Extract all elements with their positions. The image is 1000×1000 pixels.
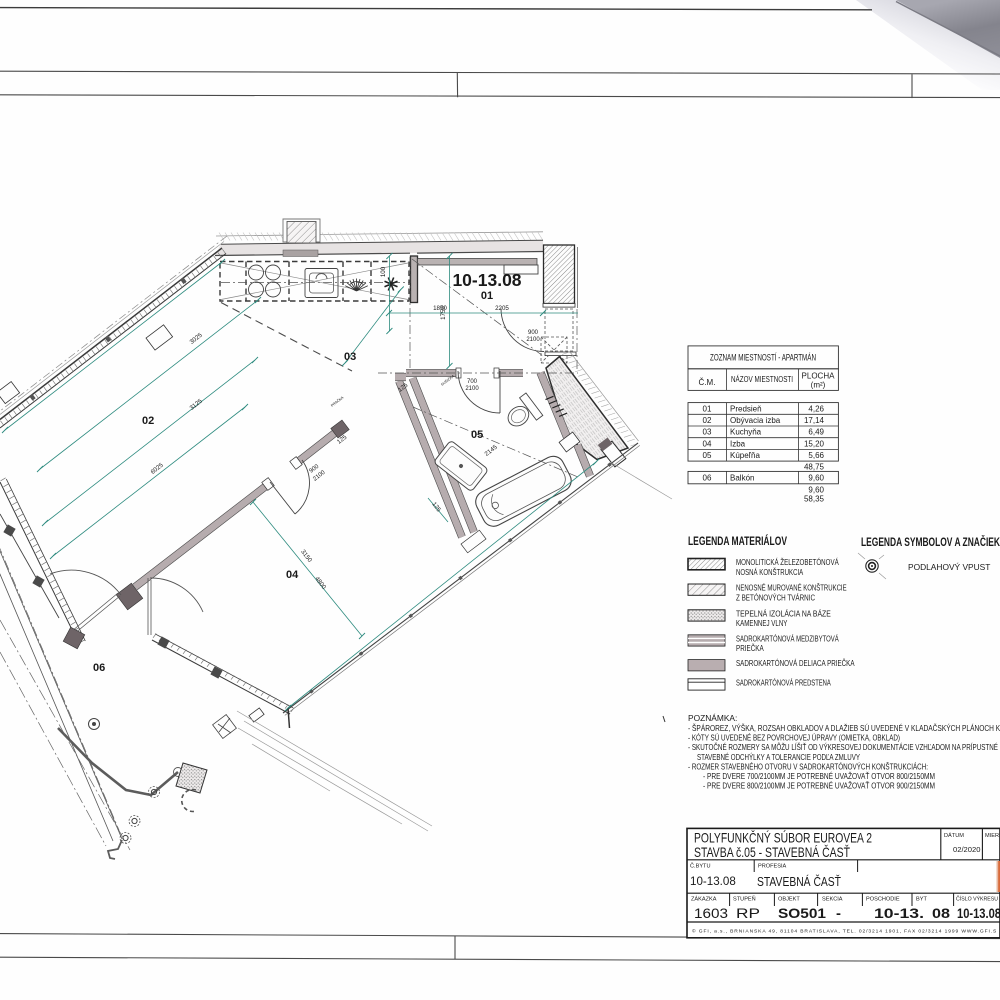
svg-text:5,66: 5,66 (808, 451, 824, 460)
svg-text:2205: 2205 (495, 305, 509, 312)
svg-text:POZNÁMKA:: POZNÁMKA: (688, 713, 737, 723)
svg-text:900: 900 (528, 330, 539, 336)
svg-text:PROFESIA: PROFESIA (758, 864, 787, 870)
svg-text:700: 700 (467, 379, 478, 385)
svg-text:10-13.08: 10-13.08 (452, 270, 521, 290)
svg-text:TEPELNÁ IZOLÁCIA NA BÁZE: TEPELNÁ IZOLÁCIA NA BÁZE (736, 608, 831, 618)
svg-text:9,60: 9,60 (808, 473, 824, 482)
svg-text:ZOZNAM MIESTNOSTÍ - APARTMÁN: ZOZNAM MIESTNOSTÍ - APARTMÁN (710, 353, 816, 363)
svg-text:58,35: 58,35 (804, 495, 825, 504)
svg-text:STAVEBNÉ ODCHÝLKY A TOLERANCIE: STAVEBNÉ ODCHÝLKY A TOLERANCIE PODĽA ZML… (697, 752, 860, 762)
svg-text:PRIEČKA: PRIEČKA (736, 643, 764, 653)
svg-text:NÁZOV MIESTNOSTI: NÁZOV MIESTNOSTI (731, 375, 793, 384)
svg-text:- ROZMER STAVEBNÉHO OTVORU V S: - ROZMER STAVEBNÉHO OTVORU V SADROKARTÓN… (688, 761, 928, 771)
svg-text:(m²): (m²) (811, 381, 826, 390)
svg-text:04: 04 (703, 439, 712, 448)
svg-text:9,60: 9,60 (808, 486, 824, 495)
svg-text:1603: 1603 (694, 906, 728, 921)
svg-text:10-13.08: 10-13.08 (690, 875, 736, 888)
svg-text:© GFI, a.s., BRNIANSKA 49, 811: © GFI, a.s., BRNIANSKA 49, 81104 BRATISL… (692, 928, 997, 935)
svg-text:BYT: BYT (916, 897, 927, 903)
svg-text:17,14: 17,14 (804, 416, 825, 425)
svg-text:Predsieň: Predsieň (730, 404, 762, 413)
svg-text:4,26: 4,26 (808, 404, 824, 413)
svg-text:48,75: 48,75 (804, 462, 825, 471)
svg-text:NOSNÁ KONŠTRUKCIA: NOSNÁ KONŠTRUKCIA (736, 567, 803, 577)
svg-text:06: 06 (93, 662, 105, 674)
svg-text:100: 100 (380, 266, 387, 277)
svg-text:PLOCHA: PLOCHA (802, 371, 836, 380)
svg-text:RP: RP (736, 906, 760, 921)
svg-text:- SKUTOČNÉ ROZMERY SA MÔŽU LÍŠ: - SKUTOČNÉ ROZMERY SA MÔŽU LÍŠIŤ OD VÝKR… (688, 742, 998, 752)
svg-text:SO501: SO501 (778, 906, 827, 921)
svg-text:- KÓTY SÚ UVEDENÉ BEZ POVRCHOV: - KÓTY SÚ UVEDENÉ BEZ POVRCHOVEJ ÚPRAVY … (688, 733, 900, 743)
svg-text:03: 03 (703, 428, 712, 437)
svg-text:05: 05 (471, 429, 483, 441)
svg-text:Balkón: Balkón (730, 473, 754, 482)
svg-text:LEGENDA MATERIÁLOV: LEGENDA MATERIÁLOV (688, 533, 788, 548)
svg-text:2100: 2100 (465, 386, 479, 392)
svg-text:SADROKARTÓNOVÁ PREDSTENA: SADROKARTÓNOVÁ PREDSTENA (736, 677, 831, 687)
svg-text:- PRE DVERE 700/2100MM JE POTR: - PRE DVERE 700/2100MM JE POTREBNÉ UVAŽO… (703, 771, 935, 781)
svg-text:-: - (836, 906, 841, 921)
svg-text:10-13.: 10-13. (874, 906, 924, 921)
svg-text:MIERKA: MIERKA (985, 833, 1000, 839)
svg-text:08: 08 (932, 906, 951, 921)
svg-text:STUPEŇ: STUPEŇ (733, 896, 756, 903)
svg-text:OBJEKT: OBJEKT (778, 897, 800, 903)
svg-text:06: 06 (703, 473, 712, 482)
svg-text:Č.M.: Č.M. (699, 378, 716, 387)
svg-text:6,49: 6,49 (808, 428, 824, 437)
svg-text:Obývacia izba: Obývacia izba (730, 416, 781, 425)
svg-text:NENOSNÉ MUROVANÉ KONŠTRUKCIE: NENOSNÉ MUROVANÉ KONŠTRUKCIE (736, 583, 847, 593)
svg-text:Izba: Izba (730, 439, 746, 448)
svg-text:Č.BYTU: Č.BYTU (690, 863, 711, 870)
svg-text:05: 05 (703, 451, 712, 460)
svg-text:10-13.08: 10-13.08 (957, 906, 1000, 921)
svg-text:POSCHODIE: POSCHODIE (866, 897, 900, 903)
svg-text:MONOLITICKÁ ŽELEZOBETÓNOVÁ: MONOLITICKÁ ŽELEZOBETÓNOVÁ (736, 557, 839, 567)
svg-text:DÁTUM: DÁTUM (944, 832, 964, 839)
svg-text:01: 01 (481, 290, 493, 302)
svg-text:SADROKARTÓNOVÁ MEDZIBYTOVÁ: SADROKARTÓNOVÁ MEDZIBYTOVÁ (736, 633, 839, 643)
svg-text:02/2020: 02/2020 (953, 845, 980, 854)
svg-text:PODLAHOVÝ VPUST: PODLAHOVÝ VPUST (908, 562, 990, 572)
svg-text:- ŠPÁROREZ, VÝŠKA, ROZSAH OBKL: - ŠPÁROREZ, VÝŠKA, ROZSAH OBKLADOV A DLA… (688, 723, 1000, 733)
svg-text:01: 01 (703, 404, 712, 413)
svg-text:KAMENNEJ VLNY: KAMENNEJ VLNY (736, 618, 788, 628)
svg-text:04: 04 (286, 569, 299, 581)
svg-text:SEKCIA: SEKCIA (822, 897, 843, 903)
svg-text:LEGENDA SYMBOLOV A ZNAČIEK: LEGENDA SYMBOLOV A ZNAČIEK (861, 534, 1000, 549)
svg-text:STAVEBNÁ ČASŤ: STAVEBNÁ ČASŤ (757, 874, 841, 889)
svg-text:1850: 1850 (433, 305, 447, 312)
svg-text:Kuchyňa: Kuchyňa (730, 428, 762, 437)
svg-text:03: 03 (344, 351, 356, 363)
svg-text:Z BETÓNOVÝCH TVÁRNIC: Z BETÓNOVÝCH TVÁRNIC (736, 592, 815, 602)
svg-text:2100: 2100 (526, 337, 540, 343)
svg-text:SADROKARTÓNOVÁ DELIACA PRIEČKA: SADROKARTÓNOVÁ DELIACA PRIEČKA (736, 658, 855, 668)
svg-text:15,20: 15,20 (804, 439, 825, 448)
svg-text:02: 02 (142, 415, 154, 427)
svg-text:STAVBA č.05 - STAVEBNÁ ČASŤ: STAVBA č.05 - STAVEBNÁ ČASŤ (694, 845, 850, 860)
svg-text:ZÁKAZKA: ZÁKAZKA (691, 896, 717, 903)
svg-text:02: 02 (703, 416, 712, 425)
svg-text:POLYFUNKČNÝ SÚBOR EUROVEA 2: POLYFUNKČNÝ SÚBOR EUROVEA 2 (694, 831, 872, 846)
svg-text:Kúpeľňa: Kúpeľňa (730, 451, 760, 460)
svg-text:ČÍSLO VÝKRESU: ČÍSLO VÝKRESU (956, 896, 998, 903)
svg-text:- PRE DVERE 800/2100MM JE POTR: - PRE DVERE 800/2100MM JE POTREBNÉ UVAŽO… (703, 781, 935, 791)
